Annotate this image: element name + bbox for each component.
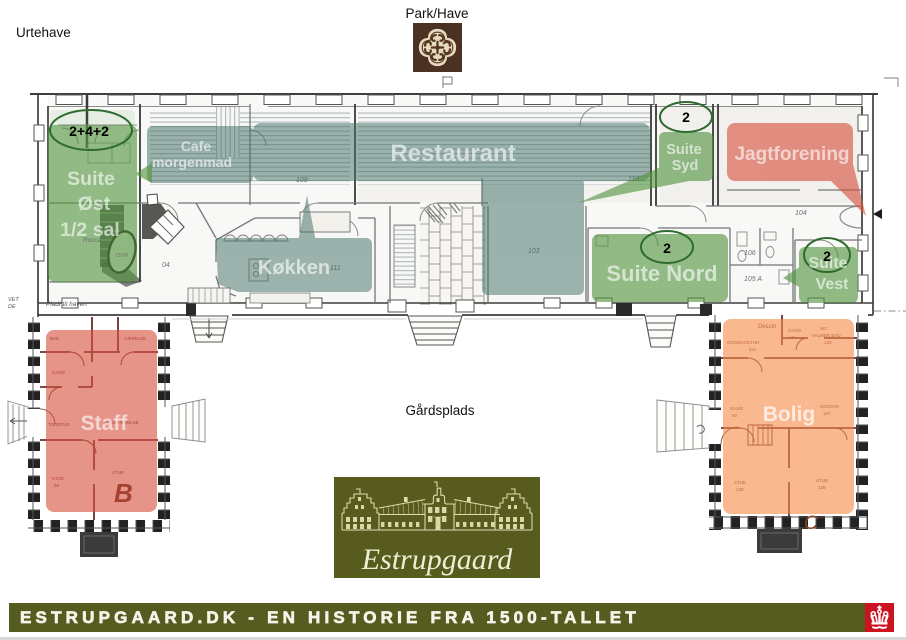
svg-text:DE: DE (8, 304, 16, 310)
svg-text:Køkken: Køkken (258, 257, 330, 279)
svg-text:2+4+2: 2+4+2 (69, 123, 109, 139)
svg-text:106: 106 (744, 250, 756, 257)
svg-text:Staff: Staff (81, 412, 129, 435)
svg-text:Suite: Suite (67, 168, 115, 190)
svg-text:VET: VET (8, 297, 19, 303)
svg-text:C: C (804, 513, 818, 534)
svg-text:105 A: 105 A (744, 276, 762, 283)
svg-text:Rocca: Rocca (83, 237, 102, 244)
svg-text:OVN: OVN (116, 253, 128, 259)
svg-text:104: 104 (795, 210, 807, 217)
svg-text:Bolig: Bolig (763, 403, 816, 426)
svg-text:2: 2 (663, 240, 671, 256)
svg-text:04: 04 (162, 262, 170, 269)
svg-text:2: 2 (682, 109, 690, 125)
svg-text:Restaurant: Restaurant (390, 140, 515, 167)
svg-text:Pladt til haven: Pladt til haven (46, 301, 87, 308)
svg-text:Jagtforening: Jagtforening (734, 144, 849, 165)
svg-text:Øst: Øst (78, 193, 111, 215)
svg-text:Suite Nord: Suite Nord (606, 261, 717, 286)
svg-text:2: 2 (823, 248, 831, 264)
svg-text:Vest: Vest (816, 276, 850, 293)
svg-text:Suite: Suite (666, 142, 701, 158)
svg-text:morgenmad: morgenmad (152, 154, 232, 170)
svg-text:Cafe: Cafe (181, 138, 212, 154)
svg-text:Syd: Syd (672, 158, 699, 174)
svg-text:Estrupgaard: Estrupgaard (361, 543, 514, 576)
